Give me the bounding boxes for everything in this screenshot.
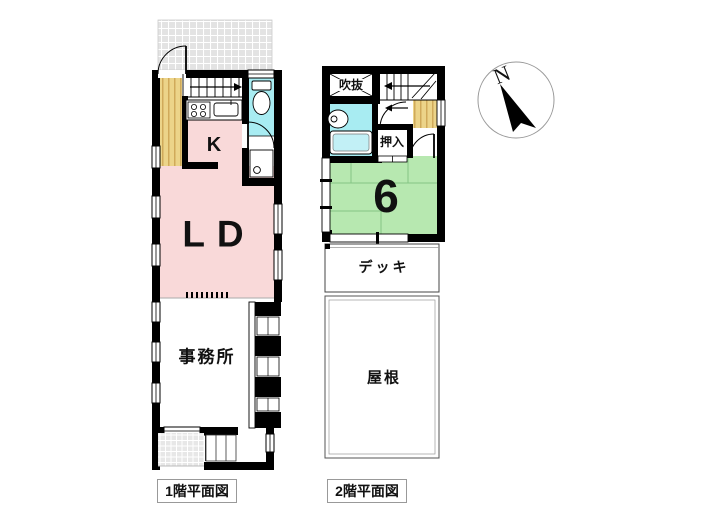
roof-label: 屋根 (367, 371, 401, 386)
floor1-caption: 1階平面図 (157, 479, 237, 503)
hall-arrow (385, 105, 408, 112)
hall-wood-floor (413, 100, 437, 128)
entry-opening (158, 70, 186, 78)
stairs-down-arrow (384, 82, 430, 90)
tatami-count-label: 6 (373, 173, 399, 219)
balcony-hatch (158, 20, 272, 70)
washbasin-icon (250, 150, 273, 177)
toilet-icon (252, 81, 271, 115)
north-arrow-icon (500, 84, 536, 132)
bathtub-icon (330, 131, 372, 154)
toilet-window (248, 70, 274, 78)
living-dining-label: LD (182, 216, 255, 253)
floorplan-canvas: K LD 事務所 吹抜 押入 6 デッキ 屋根 1階平面図 2階平面図 N (0, 0, 705, 525)
closet-label: 押入 (379, 136, 405, 148)
entrance-hatch (158, 433, 204, 466)
entrance-step (206, 435, 236, 461)
deck-label: デッキ (359, 260, 410, 274)
stairs-up-arrow (190, 83, 242, 91)
kitchen-label: K (207, 135, 221, 155)
floor2-caption: 2階平面図 (327, 479, 407, 503)
office-right-bay (249, 302, 279, 428)
corridor-floor (160, 74, 182, 166)
kitchen-counter (186, 100, 242, 120)
washstand-icon (328, 110, 348, 128)
office-label: 事務所 (179, 349, 236, 366)
void-label: 吹抜 (338, 79, 364, 91)
compass-icon (478, 62, 554, 138)
